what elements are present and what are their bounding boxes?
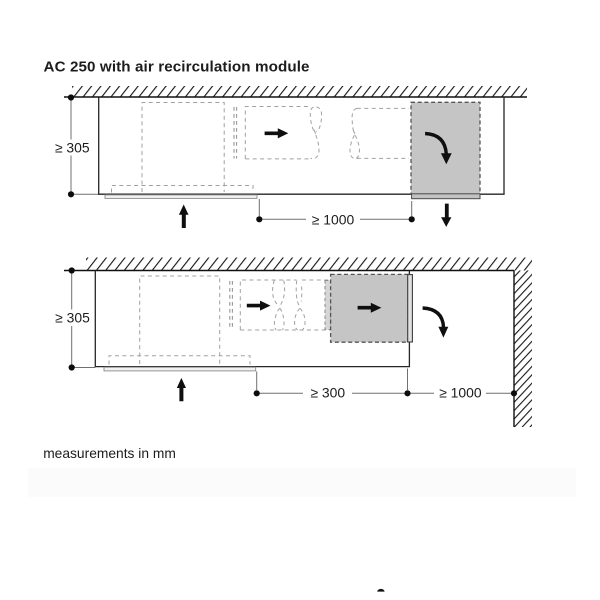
svg-text:≥ 1000: ≥ 1000	[312, 211, 355, 227]
svg-text:≥ 305: ≥ 305	[55, 139, 90, 155]
svg-text:measurements in mm: measurements in mm	[43, 446, 176, 461]
svg-text:AC 250 with air recirculation: AC 250 with air recirculation module	[44, 59, 310, 76]
svg-text:≥ 305: ≥ 305	[55, 310, 90, 326]
svg-text:≥ 1000: ≥ 1000	[439, 385, 482, 401]
svg-text:≥ 300: ≥ 300	[310, 385, 345, 401]
